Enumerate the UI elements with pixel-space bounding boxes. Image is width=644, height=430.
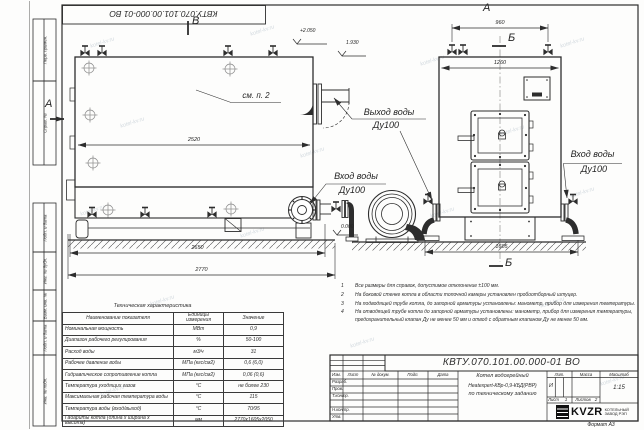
section-mark-b-bottom: Б [505,258,512,269]
tb-row-prov: Пров. [332,387,343,391]
title-block-number: КВТУ.070.101.00.000-01 ВО [385,357,638,368]
spec-row: Габариты котла (длина х ширина х высота)… [63,415,284,427]
company-cell: KVZR КОТЕЛЬНЫЙ ЗАВОД РЭП [548,404,637,420]
spec-header: Значение [224,313,284,325]
spec-row: Температура уходящих газов°Сне более 230 [63,381,284,392]
water-outlet-label: Выход воды [364,108,415,117]
water-inlet-side-label: Вход воды [334,172,378,181]
spec-row: Расход водым3/ч31 [63,347,284,358]
water-inlet-front-label: Вход воды [571,150,615,159]
front-right-pipe [561,195,584,241]
elevation-ground: 0.000 [341,225,354,230]
note-item: 1 Все размеры для справок, допустимое от… [341,283,637,290]
dim-1260: 1260 [494,61,506,67]
spec-row: Рабочее давление водыМПа (кгс/см2)0,6 (6… [63,358,284,369]
note-text: На подводящей трубе котла, до запорной а… [355,301,637,308]
kvzr-caption-line: ЗАВОД РЭП [605,412,629,416]
spec-row: Диапазон рабочего регулирования%50-100 [63,335,284,346]
spec-row: Номинальная мощностьМВт0,9 [63,324,284,335]
margin-label-perv-primen: Перв. примен. [42,36,47,65]
spec-header: Наименование показателя [63,313,174,325]
margin-label-sprav-no: Справ. № [42,113,47,133]
format-label: Формат А3 [587,423,614,428]
side-view [50,21,622,279]
section-mark-a-top: А [483,3,490,14]
note-item: 4 На отводящей трубе котла до запорной а… [341,309,637,324]
note-number: 1 [341,283,355,290]
corner-stamp: КВТУ.070.101.00.000-01 ВО [62,5,265,24]
spec-row: Температура воды (вход/выход)°С70/95 [63,404,284,415]
tb-header-lit: Лит. [555,373,565,377]
note-number: 3 [341,301,355,308]
margin-label-vzam-inv: Взам. инв. № [42,292,47,319]
margin-label-inv-podl: Инв. № подл. [42,377,47,404]
elevation-mid: 1.930 [346,41,359,46]
dim-2650: 2650 [191,246,203,252]
burner [366,191,425,243]
note-text: Все размеры для справок, допустимое откл… [355,283,637,290]
tb-header-masshtab: Масштаб [609,373,629,377]
note-item: 2 На боковой стенке котла в области топо… [341,292,637,299]
note-text: На отводящей трубе котла до запорной арм… [355,309,637,324]
flange-circle [289,197,316,224]
water-outlet-size: Ду100 [373,121,399,130]
spec-row: Гидравлическое сопротивление котлаМПа (к… [63,370,284,381]
spec-table-title: Техническая характеристика [62,303,243,309]
title-block-name-1: Котел водогрейный [458,373,547,379]
tb-header-massa: Масса [580,373,592,377]
note-number: 2 [341,292,355,299]
sight-box [524,77,550,100]
note-text: На боковой стенке котла в области топочн… [355,292,637,299]
drawing-sheet: kotel-kv.ru kotel-kv.ru kotel-kv.ru kote… [0,0,644,430]
margin-label-podp-data-1: Подп. и дата [42,214,47,241]
section-mark-v: В [192,16,199,27]
note-number: 4 [341,309,355,324]
margin-label-inv-dubl: Инв. № дубл. [42,258,47,284]
upper-door [458,111,533,160]
dim-2520: 2520 [188,138,200,144]
water-inlet-front-size: Ду100 [581,165,607,174]
tb-row-razrab: Разраб. [332,380,347,384]
tb-row-utv: Утв. [332,415,342,419]
tb-row-tkontr: Т.контр. [332,394,349,398]
title-block-name-3: по техническому заданию [458,391,547,397]
spec-header: Единицы измерения [174,313,224,325]
tb-header-data: Дата [437,373,448,377]
tb-lit-value: И [549,384,553,390]
tb-header-doc: № докум. [371,373,389,377]
tb-header-list: Лист [348,373,359,377]
tb-listov-value: 2 [595,398,598,403]
tb-header-izm: Изм. [332,373,341,377]
dim-1605: 1605 [495,245,507,251]
spec-row: Максимальная рабочая температура воды°С1… [63,392,284,403]
tb-list-label: Лист [548,398,559,402]
margin-label-podp-data-2: Подп. и дата [42,325,47,352]
tb-list-value: 1 [565,398,568,403]
tb-listov-label: Листов [575,398,590,402]
tb-header-podp: Подп. [407,373,418,377]
dim-2770: 2770 [195,268,207,274]
tb-scale-value: 1:15 [613,385,625,391]
water-inlet-side-size: Ду100 [339,186,365,195]
side-outlet-pipe [300,84,349,128]
section-mark-a-left: А [45,99,52,110]
dim-960: 960 [495,21,504,27]
tb-row-nkontr: Н.контр. [332,408,350,412]
kvzr-logo-text: KVZR [571,406,603,418]
lower-door [458,162,533,213]
section-mark-b-top: Б [508,33,515,44]
see-item-label: см. п. 2 [242,92,269,100]
title-block-name-2: Heatexpert-КВр-0,9-КБД(РВР) [458,383,547,389]
note-item: 3 На подводящей трубе котла, до запорной… [341,301,637,308]
notes-list: 1 Все размеры для справок, допустимое от… [341,283,637,325]
elevation-top: +2.050 [300,29,315,34]
kvzr-logo-icon [556,405,569,419]
kvzr-caption: КОТЕЛЬНЫЙ ЗАВОД РЭП [605,408,629,417]
spec-table: Наименование показателя Единицы измерени… [62,312,284,427]
